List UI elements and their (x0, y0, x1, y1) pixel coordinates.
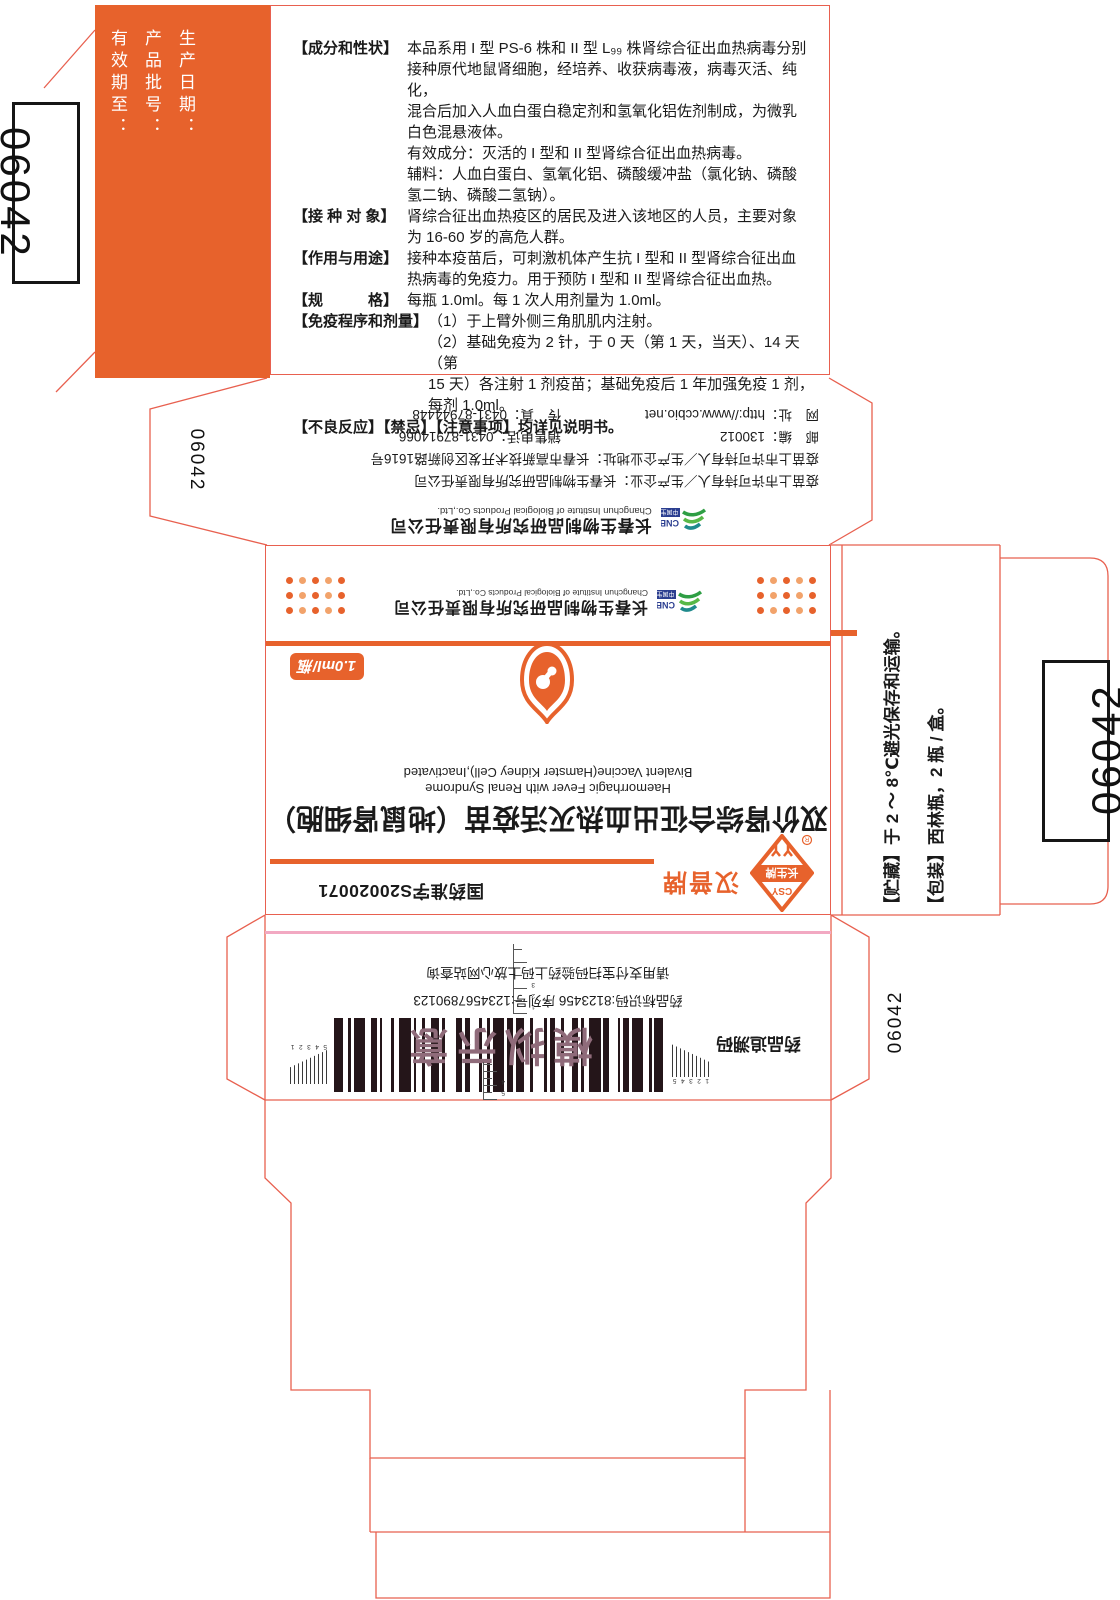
spec-text: 本品系用 I 型 PS-6 株和 II 型 L₉₉ 株肾综合征出血热病毒分别 接… (407, 38, 819, 206)
web-fax-row: 网 址：http://www.ccbio.net 传 真：0431-879444… (265, 403, 819, 425)
box-dieline-artwork: { "colors":{"orange":"#E7622C","dieline"… (0, 0, 1120, 1600)
batch-code-left: 06042 (0, 127, 38, 257)
spec-label: 【成分和性状】 (293, 38, 407, 59)
specification-panel: 【成分和性状】本品系用 I 型 PS-6 株和 II 型 L₉₉ 株肾综合征出血… (270, 5, 830, 375)
crest-emblem-icon (518, 640, 576, 724)
batch-code-box-right: 06042 (1042, 660, 1110, 842)
batch-code-right: 06042 (1084, 685, 1120, 815)
license-holder-line: 疫苗上市许可持有人／生产企业：长春生物制品研究所有限责任公司 (265, 469, 819, 491)
product-name-cn: 双价肾综合征出血热灭活疫苗（地鼠肾细胞） (266, 800, 830, 840)
company-address-line: 疫苗上市许可持有人／生产企业地址：长春市高新技术开发区创新路1616号 (265, 447, 819, 469)
company-logo-row: CNBG 中国生物 长春生物制品研究所有限责任公司 Changchun Inst… (265, 499, 831, 539)
storage-text-block: 【贮藏】于 2 ～ 8℃避光保存和运输。 【包装】西林瓶，2 瓶 / 盒。 (871, 547, 963, 913)
approval-number: 国药准字S20020071 (318, 879, 484, 904)
company-band: CNBG 中国生物 长春生物制品研究所有限责任公司 Changchun Inst… (266, 554, 830, 626)
sales-phone: 销售电话：0431-87914066 (399, 425, 561, 447)
trace-code-panel: 药品追溯码 12345 模拟示意 54321 123 54 药品标识码:8123… (265, 933, 831, 1100)
batch-code-box-left: 06042 (12, 102, 80, 284)
spec-text: 每瓶 1.0ml。每 1 次人用剂量为 1.0ml。 (407, 290, 670, 311)
storage-panel: 【贮藏】于 2 ～ 8℃避光保存和运输。 【包装】西林瓶，2 瓶 / 盒。 (831, 545, 1003, 915)
verify-hint-line: 请用支付宝扫码验药上码上放心网站查询 (265, 964, 831, 984)
spec-label: 【规 格】 (293, 290, 407, 311)
spec-section: 【接 种 对 象】肾综合征出血热疫区的居民及进入该地区的人员，主要对象 为 16… (293, 206, 819, 248)
trademark-name: 长生牌 (766, 866, 799, 880)
product-name-en-2: Bivalent Vaccine(Hamster Kidney Cell),In… (266, 765, 830, 780)
company-name-en: Changchun Institute of Biological Produc… (393, 587, 648, 597)
spec-label: 【接 种 对 象】 (293, 206, 407, 227)
spec-section: 【作用与用途】接种本疫苗后，可刺激机体产生抗 I 型和 II 型肾综合征出血 热… (293, 248, 819, 290)
trademark-top-text: CSY (771, 885, 792, 896)
spec-text: 肾综合征出血热疫区的居民及进入该地区的人员，主要对象 为 16-60 岁的高危人… (407, 206, 797, 248)
expiry-date-label: 有效期至： (105, 29, 130, 139)
storage-line: 【贮藏】于 2 ～ 8℃避光保存和运输。 (871, 547, 915, 913)
spec-text: 接种本疫苗后，可刺激机体产生抗 I 型和 II 型肾综合征出血 热病毒的免疫力。… (407, 248, 796, 290)
batch-info-panel: 生产日期： 产品批号： 有效期至： (95, 5, 270, 378)
brand-divider-line (270, 859, 654, 864)
cnbg-abbr: CNBG (661, 518, 679, 528)
spec-label: 【免疫程序和剂量】 (293, 311, 428, 332)
print-scale-left: 12345 (669, 1038, 709, 1084)
company-name-en: Changchun Institute of Biological Produc… (389, 504, 652, 515)
company-name-cn: 长春生物制品研究所有限责任公司 (389, 515, 652, 534)
dot-pattern-right (280, 569, 345, 614)
manufacture-date-label: 生产日期： (173, 29, 198, 139)
bottom-rule-line (266, 641, 830, 646)
postcode: 邮 编：130012 (561, 425, 819, 447)
company-band-center: CNBG 中国生物 长春生物制品研究所有限责任公司 Changchun Inst… (266, 584, 830, 618)
trace-code-label: 药品追溯码 (716, 1033, 801, 1058)
print-scale-right: 54321 (287, 1038, 327, 1084)
package-line: 【包装】西林瓶，2 瓶 / 盒。 (915, 547, 959, 913)
cnbg-logo-icon: CNBG 中国生物 (657, 584, 703, 618)
flap-code-bottom: 06042 (884, 984, 908, 1060)
company-info-flap: CNBG 中国生物 长春生物制品研究所有限责任公司 Changchun Inst… (265, 378, 831, 545)
svg-text:CNBG: CNBG (657, 600, 675, 610)
flap-code-top: 06042 (184, 422, 208, 498)
main-display-face: CSY 长生牌 R 汉普牌 国药准字S20020071 双价肾综合征出血热灭活疫… (265, 545, 831, 915)
csy-trademark-icon: CSY 长生牌 R (750, 834, 814, 912)
brand-name: 汉普牌 (661, 867, 739, 902)
postcode-sales-row: 邮 编：130012 销售电话：0431-87914066 (265, 425, 819, 447)
company-names: 长春生物制品研究所有限责任公司 Changchun Institute of B… (389, 504, 652, 534)
spec-section: 【成分和性状】本品系用 I 型 PS-6 株和 II 型 L₉₉ 株肾综合征出血… (293, 38, 819, 206)
fax: 传 真：0431-87944448 (412, 403, 561, 425)
cnbg-logo-icon: CNBG 中国生物 (661, 502, 707, 536)
drug-id-serial-line: 药品标识码:8123456 序列号:1234567890123 (265, 992, 831, 1012)
product-name-en-1: Haemorrhagic Fever with Renal Syndrome (266, 781, 830, 796)
website: 网 址：http://www.ccbio.net (561, 403, 819, 425)
spec-label: 【作用与用途】 (293, 248, 407, 269)
dose-badge: 1.0ml/瓶 (290, 653, 364, 680)
batch-labels: 生产日期： 产品批号： 有效期至： (96, 29, 198, 139)
company-name-cn: 长春生物制品研究所有限责任公司 (393, 597, 648, 615)
print-ladder-top: 54 (483, 1062, 505, 1100)
lot-number-label: 产品批号： (139, 29, 164, 139)
spec-section: 【规 格】每瓶 1.0ml。每 1 次人用剂量为 1.0ml。 (293, 290, 819, 311)
